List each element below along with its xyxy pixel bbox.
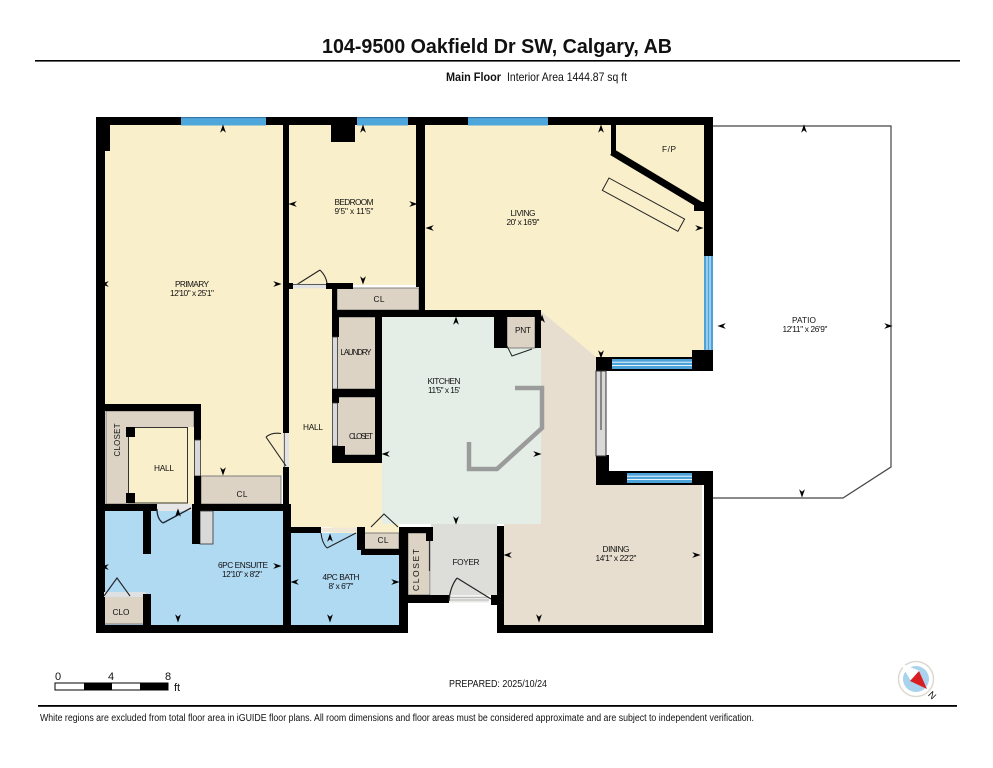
svg-text:CL: CL (374, 294, 385, 304)
svg-text:14'1" x 22'2": 14'1" x 22'2" (596, 553, 637, 563)
svg-text:11'5" x 15': 11'5" x 15' (428, 385, 460, 395)
svg-text:CL: CL (237, 489, 248, 499)
svg-text:104-9500 Oakfield Dr SW, Calga: 104-9500 Oakfield Dr SW, Calgary, AB (322, 35, 672, 58)
svg-text:White regions are excluded fro: White regions are excluded from total fl… (40, 713, 754, 724)
svg-text:12'11" x 26'9": 12'11" x 26'9" (783, 324, 828, 334)
svg-text:Main Floor: Main Floor (446, 70, 501, 84)
svg-text:9'5" x 11'5": 9'5" x 11'5" (335, 206, 374, 216)
svg-text:FOYER: FOYER (453, 557, 480, 567)
svg-text:Interior Area 1444.87 sq ft: Interior Area 1444.87 sq ft (507, 70, 628, 84)
svg-text:ft: ft (174, 682, 180, 694)
svg-text:F/P: F/P (662, 144, 676, 154)
svg-text:8' x 6'7": 8' x 6'7" (329, 581, 354, 591)
svg-text:0: 0 (55, 671, 61, 683)
svg-text:CLOSET: CLOSET (349, 432, 373, 441)
svg-text:CL: CL (378, 535, 389, 545)
svg-text:CLO: CLO (113, 607, 131, 617)
svg-text:12'10" x 8'2": 12'10" x 8'2" (222, 569, 262, 579)
svg-text:8: 8 (165, 671, 171, 683)
svg-text:HALL: HALL (303, 422, 323, 432)
svg-text:HALL: HALL (154, 463, 174, 473)
svg-text:20' x 16'9": 20' x 16'9" (507, 217, 540, 227)
svg-text:CLOSET: CLOSET (113, 423, 122, 456)
svg-text:LAUNDRY: LAUNDRY (341, 348, 373, 357)
svg-text:PNT: PNT (515, 325, 531, 335)
svg-text:4: 4 (108, 671, 114, 683)
svg-text:12'10" x 25'1": 12'10" x 25'1" (170, 288, 214, 298)
svg-text:PREPARED: 2025/10/24: PREPARED: 2025/10/24 (449, 678, 547, 690)
